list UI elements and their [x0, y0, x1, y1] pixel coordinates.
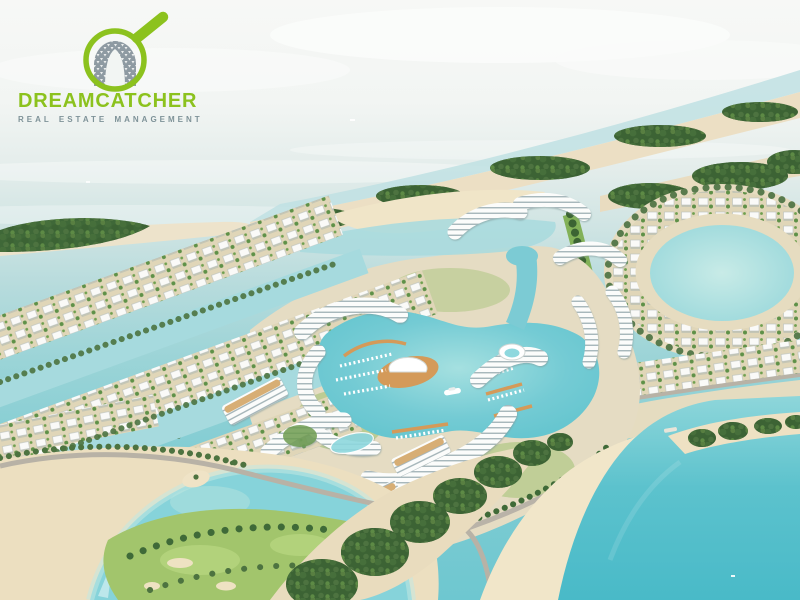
sand-bunker — [216, 582, 236, 591]
aerial-masterplan-render: DREAMCATCHER REAL ESTATE MANAGEMENT — [0, 0, 800, 600]
tree-cluster — [547, 433, 573, 451]
upper-basin — [506, 246, 538, 266]
sand-bunker — [167, 558, 193, 568]
islet-palm — [193, 474, 198, 479]
tree-cluster — [474, 456, 522, 488]
tree-cluster — [490, 156, 590, 180]
tree-cluster — [513, 440, 551, 466]
tree-cluster — [754, 418, 782, 434]
distant-boat — [350, 119, 355, 121]
heart-lagoon — [650, 225, 794, 321]
magnifier-handle — [137, 17, 163, 38]
brand-logo: DREAMCATCHER REAL ESTATE MANAGEMENT — [18, 8, 233, 124]
rooftop-pool — [505, 349, 520, 358]
magnifier-arch-logo-icon — [30, 8, 180, 94]
brand-tagline: REAL ESTATE MANAGEMENT — [18, 115, 233, 124]
distant-boat — [731, 575, 735, 577]
tree-cluster — [718, 422, 748, 440]
tree-cluster — [433, 478, 487, 514]
tree-cluster — [688, 429, 716, 447]
tree-cluster — [722, 102, 798, 122]
brand-name: DREAMCATCHER — [18, 90, 233, 113]
courtyard-garden — [283, 425, 317, 447]
distant-boat — [86, 181, 90, 183]
tree-cluster — [614, 125, 706, 147]
